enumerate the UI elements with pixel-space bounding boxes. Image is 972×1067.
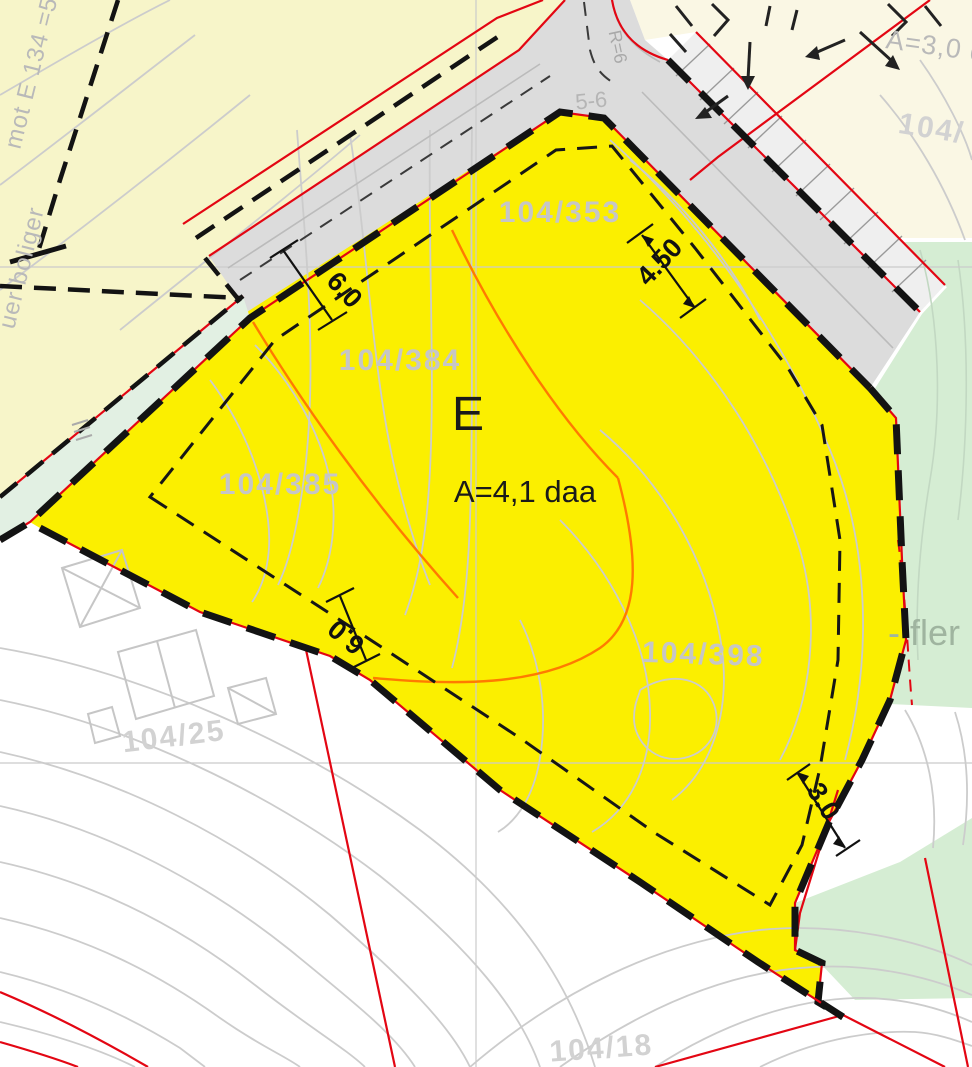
zone-code-label: E <box>452 388 484 441</box>
parcel-label-104-353: 104/353 <box>499 196 621 229</box>
parcel-label-104-385: 104/385 <box>219 468 341 501</box>
parcel-label-104-18: 104/18 <box>548 1028 654 1067</box>
parcel-label-104-25: 104/25 <box>120 714 227 759</box>
zone-area-label: A=4,1 daa <box>454 474 597 509</box>
margin-note-right: - fler <box>888 612 960 653</box>
parcel-label-104-398: 104/398 <box>642 636 766 673</box>
zoning-plan-map: 4.50 6.0 6.0 3.0 104/353 104/384 104/385… <box>0 0 972 1067</box>
map-canvas[interactable]: 4.50 6.0 6.0 3.0 104/353 104/384 104/385… <box>0 0 972 1067</box>
parcel-label-104-384: 104/384 <box>339 344 461 377</box>
road-profile-annotation: 5-6 <box>574 86 608 114</box>
